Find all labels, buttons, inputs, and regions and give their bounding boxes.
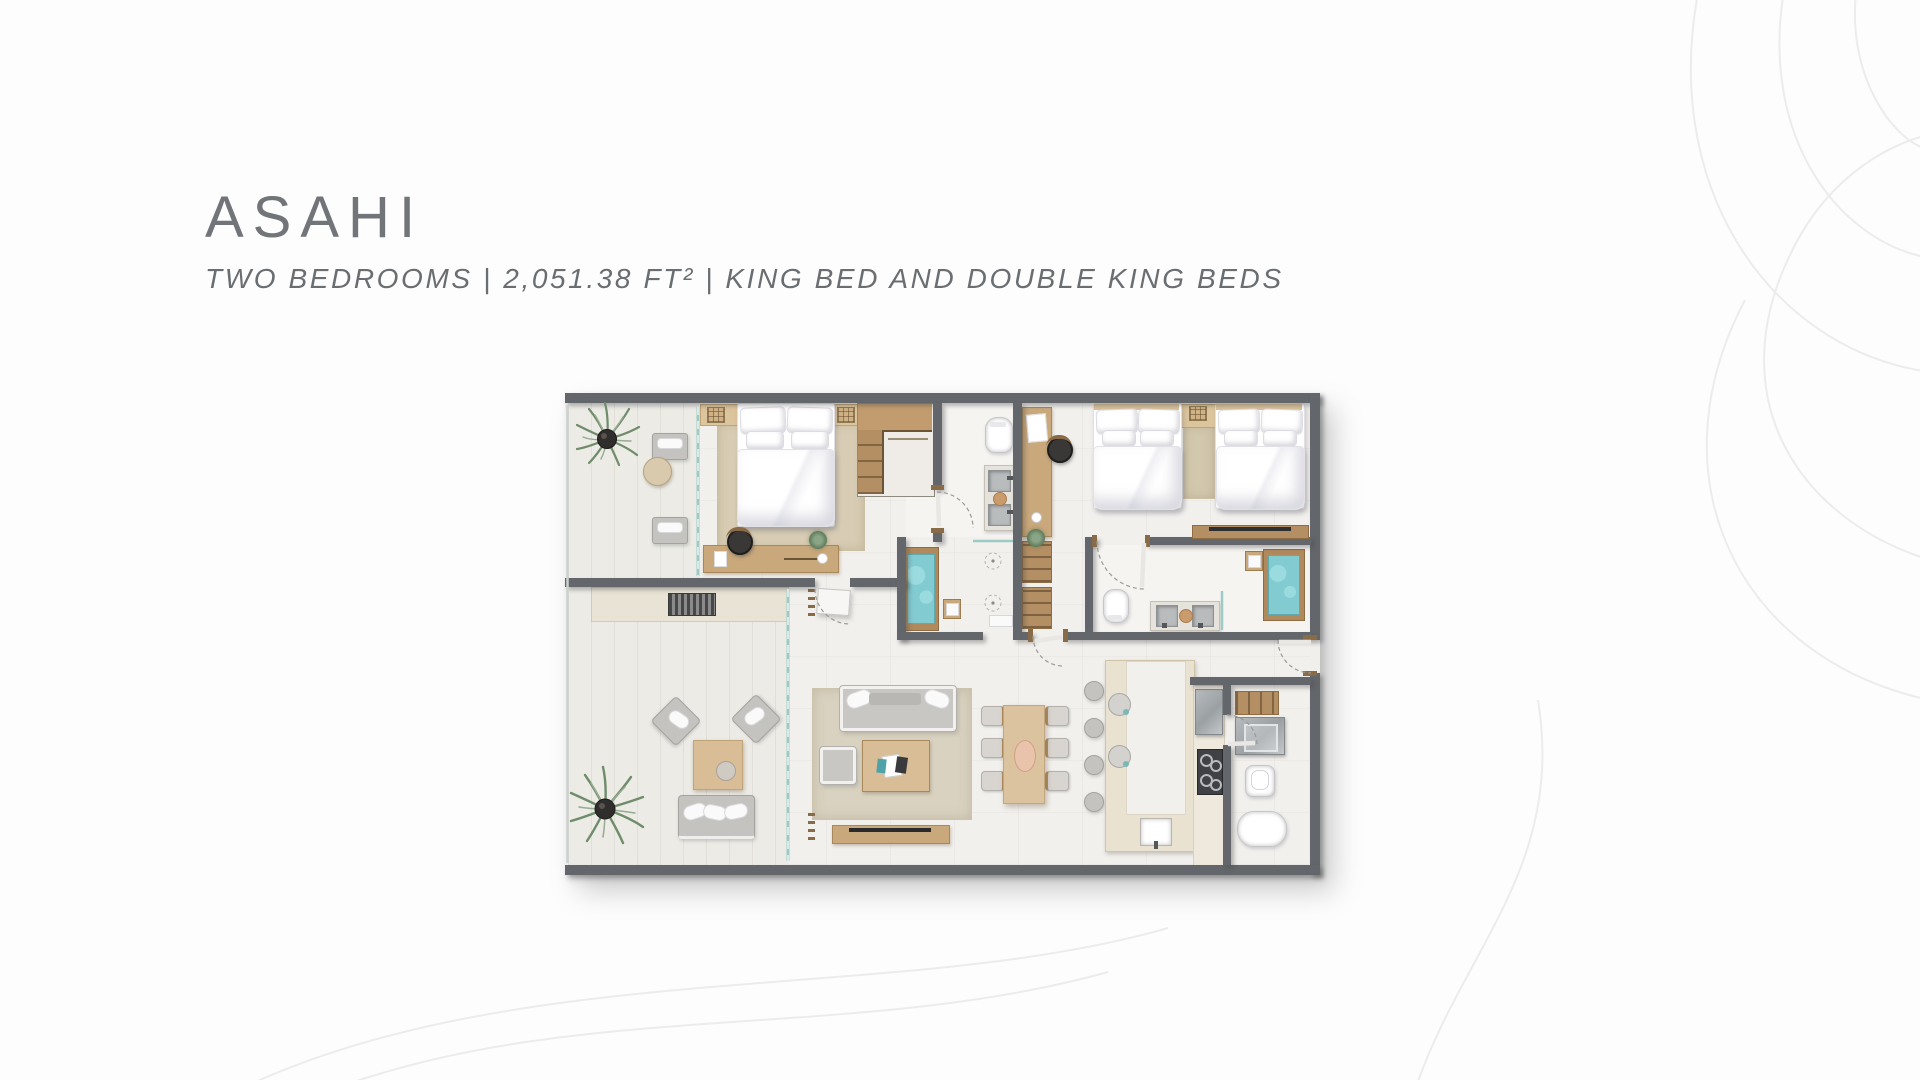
table-lamp: [1189, 406, 1207, 421]
wall: [1063, 632, 1311, 640]
glass: [1123, 709, 1129, 715]
tv-console: [1192, 525, 1309, 539]
cooktop: [1197, 749, 1223, 795]
terrace-floor-upper: [568, 403, 698, 578]
wall: [565, 393, 1320, 403]
wall: [1310, 393, 1320, 640]
duvet: [1093, 446, 1182, 510]
door-jamb: [1145, 535, 1150, 547]
pillow: [1224, 430, 1258, 447]
dining-chair: [981, 738, 1005, 758]
hanger-rail: [888, 438, 928, 440]
sink: [1192, 605, 1214, 627]
coffee-table: [862, 740, 930, 792]
burner: [1210, 760, 1222, 772]
sink: [988, 470, 1011, 492]
wall: [1013, 403, 1022, 640]
door-jamb: [1303, 635, 1317, 640]
king-bed: [1215, 403, 1305, 509]
door-jamb: [1028, 629, 1033, 642]
pillow: [723, 802, 750, 822]
kitchen-island-counter: [1105, 660, 1195, 852]
serving-tray: [1014, 740, 1036, 772]
unit-subtitle: TWO BEDROOMS | 2,051.38 FT² | KING BED A…: [205, 263, 1284, 295]
runner-rug: [1183, 425, 1215, 499]
outdoor-coffee-table: [693, 740, 743, 790]
dining-chair: [1045, 738, 1069, 758]
washer-door: [1244, 724, 1278, 752]
door-leaf: [816, 588, 851, 616]
unit-title: ASAHI: [205, 188, 1284, 249]
wardrobe-shelf: [858, 404, 932, 432]
wall: [565, 578, 815, 587]
header: ASAHI TWO BEDROOMS | 2,051.38 FT² | KING…: [205, 188, 1284, 295]
pillow: [791, 431, 829, 450]
burner: [1210, 779, 1222, 791]
wall: [1223, 745, 1231, 865]
shower-bench: [989, 615, 1013, 627]
lounge-chair: [652, 517, 688, 544]
duvet: [1216, 446, 1305, 510]
dining-chair: [981, 771, 1005, 791]
soaking-tub: [903, 547, 939, 631]
magazine: [876, 759, 886, 774]
soap-tray: [993, 492, 1007, 506]
wall: [1190, 677, 1311, 685]
toilet: [1245, 765, 1275, 797]
pillow: [1102, 430, 1136, 447]
dining-chair: [1045, 706, 1069, 726]
sink: [988, 504, 1011, 526]
soaking-tub: [1263, 549, 1305, 621]
duvet: [737, 449, 835, 527]
floor-plan: [565, 393, 1320, 875]
door-jamb: [1063, 629, 1068, 642]
plant: [1027, 529, 1045, 547]
armchair: [820, 747, 856, 784]
dining-chair: [1045, 771, 1069, 791]
table-lamp: [837, 407, 855, 423]
double-sink-vanity: [1150, 601, 1220, 631]
bar-stool: [1084, 718, 1104, 738]
seat-cushion: [869, 693, 921, 705]
papers: [1026, 413, 1048, 443]
wall: [1085, 537, 1093, 632]
washer: [1235, 717, 1285, 755]
pillow: [1140, 430, 1174, 447]
outdoor-sofa: [678, 795, 755, 839]
open-wardrobe-shelves: [1022, 541, 1052, 583]
tub-water: [907, 554, 935, 624]
desk-plant: [809, 531, 827, 549]
table-lamp: [707, 407, 725, 423]
brochure-page: ASAHI TWO BEDROOMS | 2,051.38 FT² | KING…: [0, 0, 1920, 1080]
toilet: [985, 417, 1013, 453]
toilet: [1103, 589, 1129, 623]
wall: [565, 865, 1320, 875]
desk-chair: [1047, 437, 1073, 463]
wall: [1310, 673, 1320, 875]
sofa: [840, 686, 956, 731]
pillow: [746, 431, 784, 450]
round-tray: [716, 761, 736, 781]
round-side-table: [643, 457, 672, 486]
desk: [703, 545, 839, 573]
wall: [1223, 685, 1231, 715]
towel-ladder: [808, 589, 815, 617]
lounge-chair: [652, 433, 688, 460]
ac-vent-grille: [668, 593, 716, 616]
open-wardrobe-shelves: [1022, 587, 1052, 629]
faucet: [1162, 623, 1167, 628]
wood-stool: [943, 599, 961, 619]
king-bed: [1093, 403, 1182, 509]
magazine: [895, 756, 908, 773]
dining-chair: [981, 706, 1005, 726]
pillow: [922, 687, 952, 711]
tv-console: [832, 825, 950, 844]
faucet: [1154, 841, 1158, 849]
coffee-cup: [817, 553, 828, 564]
sink: [1156, 605, 1178, 627]
wardrobe-shelves: [858, 430, 884, 494]
wood-stool: [1245, 551, 1263, 571]
vanity-desk: [1022, 407, 1052, 537]
door-jamb: [931, 528, 944, 533]
faucet: [1198, 623, 1203, 628]
double-sink-vanity: [984, 465, 1015, 531]
television: [849, 828, 931, 832]
kitchen-sink: [1140, 818, 1172, 846]
desk-chair: [727, 529, 753, 555]
bar-stool: [1084, 681, 1104, 701]
door-jamb: [1092, 535, 1097, 547]
television: [1209, 527, 1291, 531]
wall: [897, 632, 983, 640]
bar-stool: [1084, 755, 1104, 775]
tub-water: [1268, 555, 1300, 615]
glass: [1123, 761, 1129, 767]
dining-table: [1003, 705, 1045, 804]
toilet-seat: [1251, 770, 1269, 790]
soap-tray: [1179, 609, 1193, 623]
kitchen-walkway: [1126, 661, 1186, 815]
wall: [897, 537, 906, 640]
toilet-tank: [990, 422, 1006, 427]
bar-stool: [1084, 792, 1104, 812]
basin: [1237, 811, 1287, 847]
king-bed: [737, 403, 835, 527]
utility-cabinet: [1235, 691, 1279, 715]
wall: [933, 403, 942, 490]
door-jamb: [1303, 671, 1317, 676]
coffee-cup: [1031, 512, 1042, 523]
built-in-wardrobe: [857, 403, 935, 497]
paper: [714, 551, 727, 567]
toilet-tank: [1108, 615, 1122, 620]
door-jamb: [931, 485, 944, 490]
towel-ladder: [808, 813, 815, 841]
pillow: [1263, 430, 1297, 447]
refrigerator: [1195, 689, 1223, 735]
